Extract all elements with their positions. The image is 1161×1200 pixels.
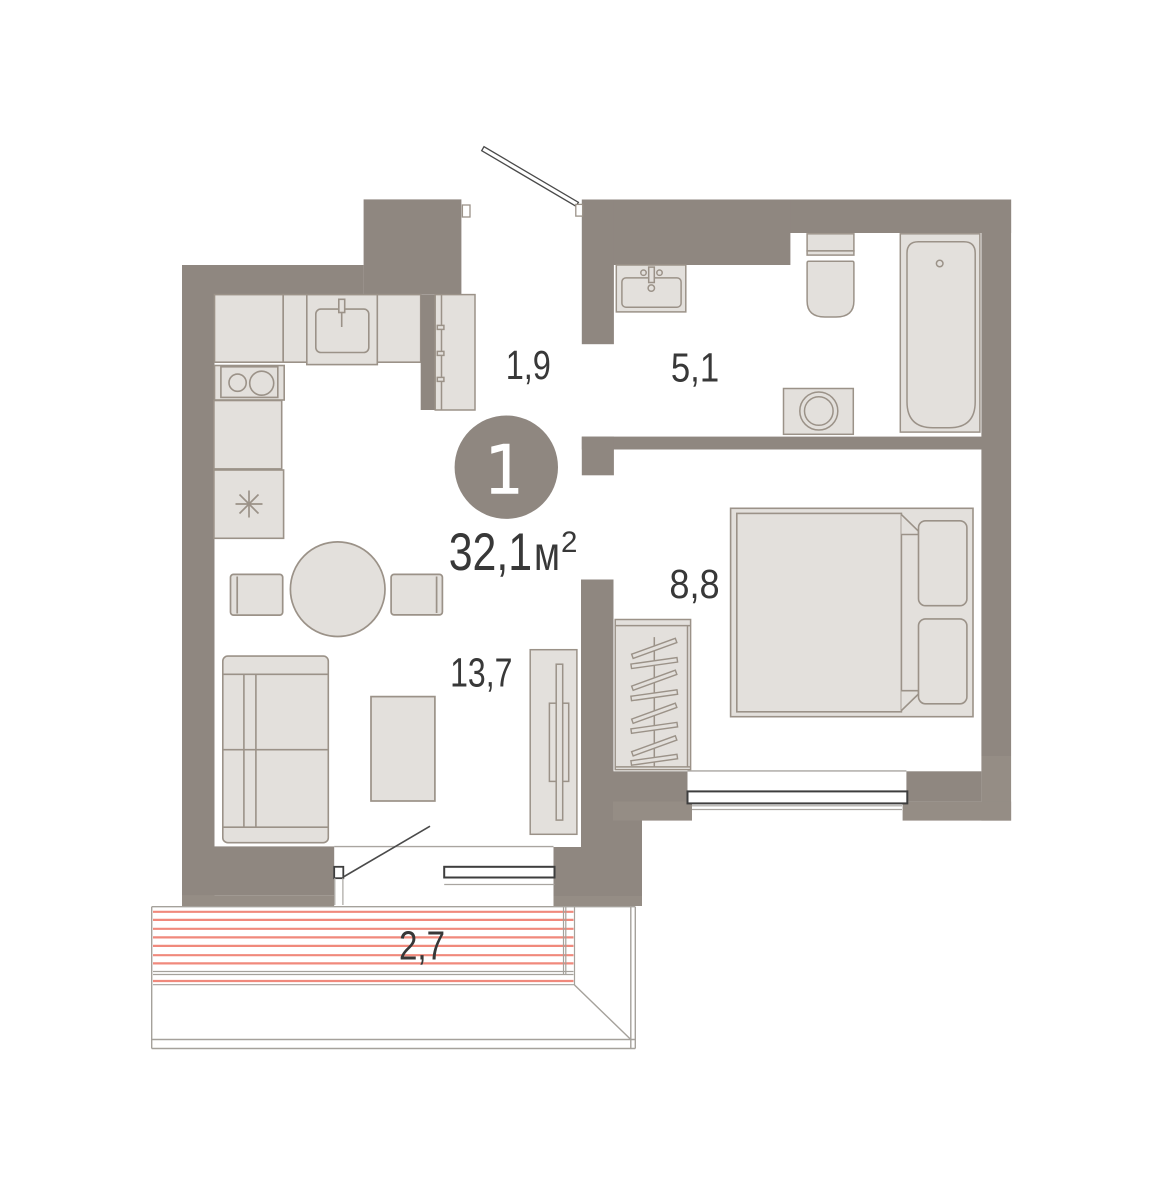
svg-text:13,7: 13,7 [450,650,512,696]
svg-text:1,9: 1,9 [506,342,551,388]
svg-text:5,1: 5,1 [671,344,719,390]
svg-text:32,1: 32,1 [449,523,532,582]
svg-text:8,8: 8,8 [669,561,719,607]
svg-text:2: 2 [561,526,577,559]
svg-text:м: м [534,528,560,581]
svg-text:2,7: 2,7 [399,923,445,969]
